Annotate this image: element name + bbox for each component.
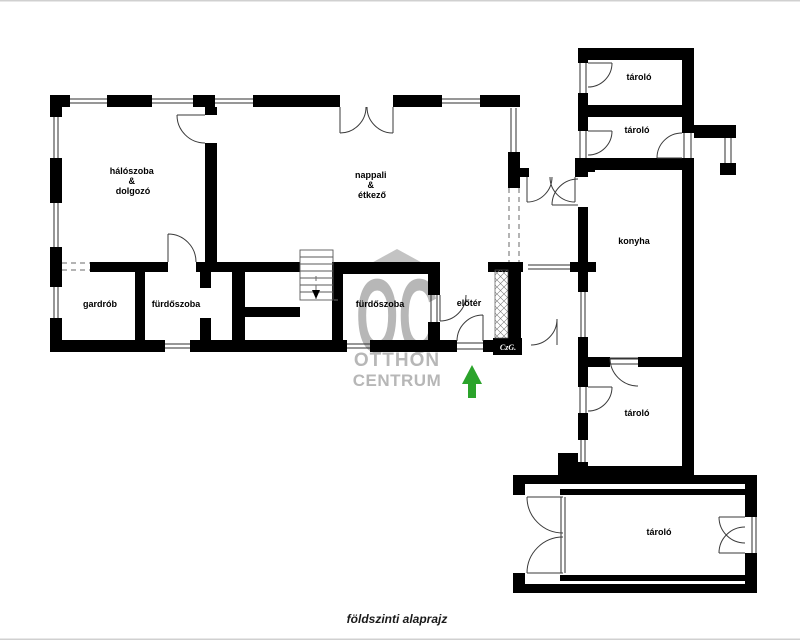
room-area-konyha — [588, 170, 682, 357]
room-label-furdoszoba2: fürdőszoba — [356, 299, 405, 309]
floor-plan-page: OC OTTHON CENTRUM — [0, 0, 800, 640]
room-label-tarolo1: tároló — [626, 72, 652, 82]
room-label-eloter: előtér — [457, 298, 482, 308]
top-border-line — [0, 0, 800, 2]
room-area-nappali — [217, 107, 508, 262]
room-label-tarolo4: tároló — [646, 527, 672, 537]
entrance-arrow-icon — [462, 365, 482, 398]
watermark-line2: CENTRUM — [353, 371, 442, 390]
signature: CzG. — [500, 343, 516, 352]
plan-caption: földszinti alaprajz — [347, 612, 448, 626]
stair-direction-arrow-icon — [312, 290, 320, 299]
room-label-tarolo2: tároló — [624, 125, 650, 135]
floor-plan-svg: OC OTTHON CENTRUM — [0, 0, 800, 640]
room-label-konyha: konyha — [618, 236, 651, 246]
room-label-tarolo3: tároló — [624, 408, 650, 418]
room-label-gardrob: gardrób — [83, 299, 118, 309]
room-label-furdoszoba1: fürdőszoba — [152, 299, 201, 309]
watermark-line1: OTTHON — [354, 350, 440, 371]
chimney-hatch — [495, 270, 508, 338]
